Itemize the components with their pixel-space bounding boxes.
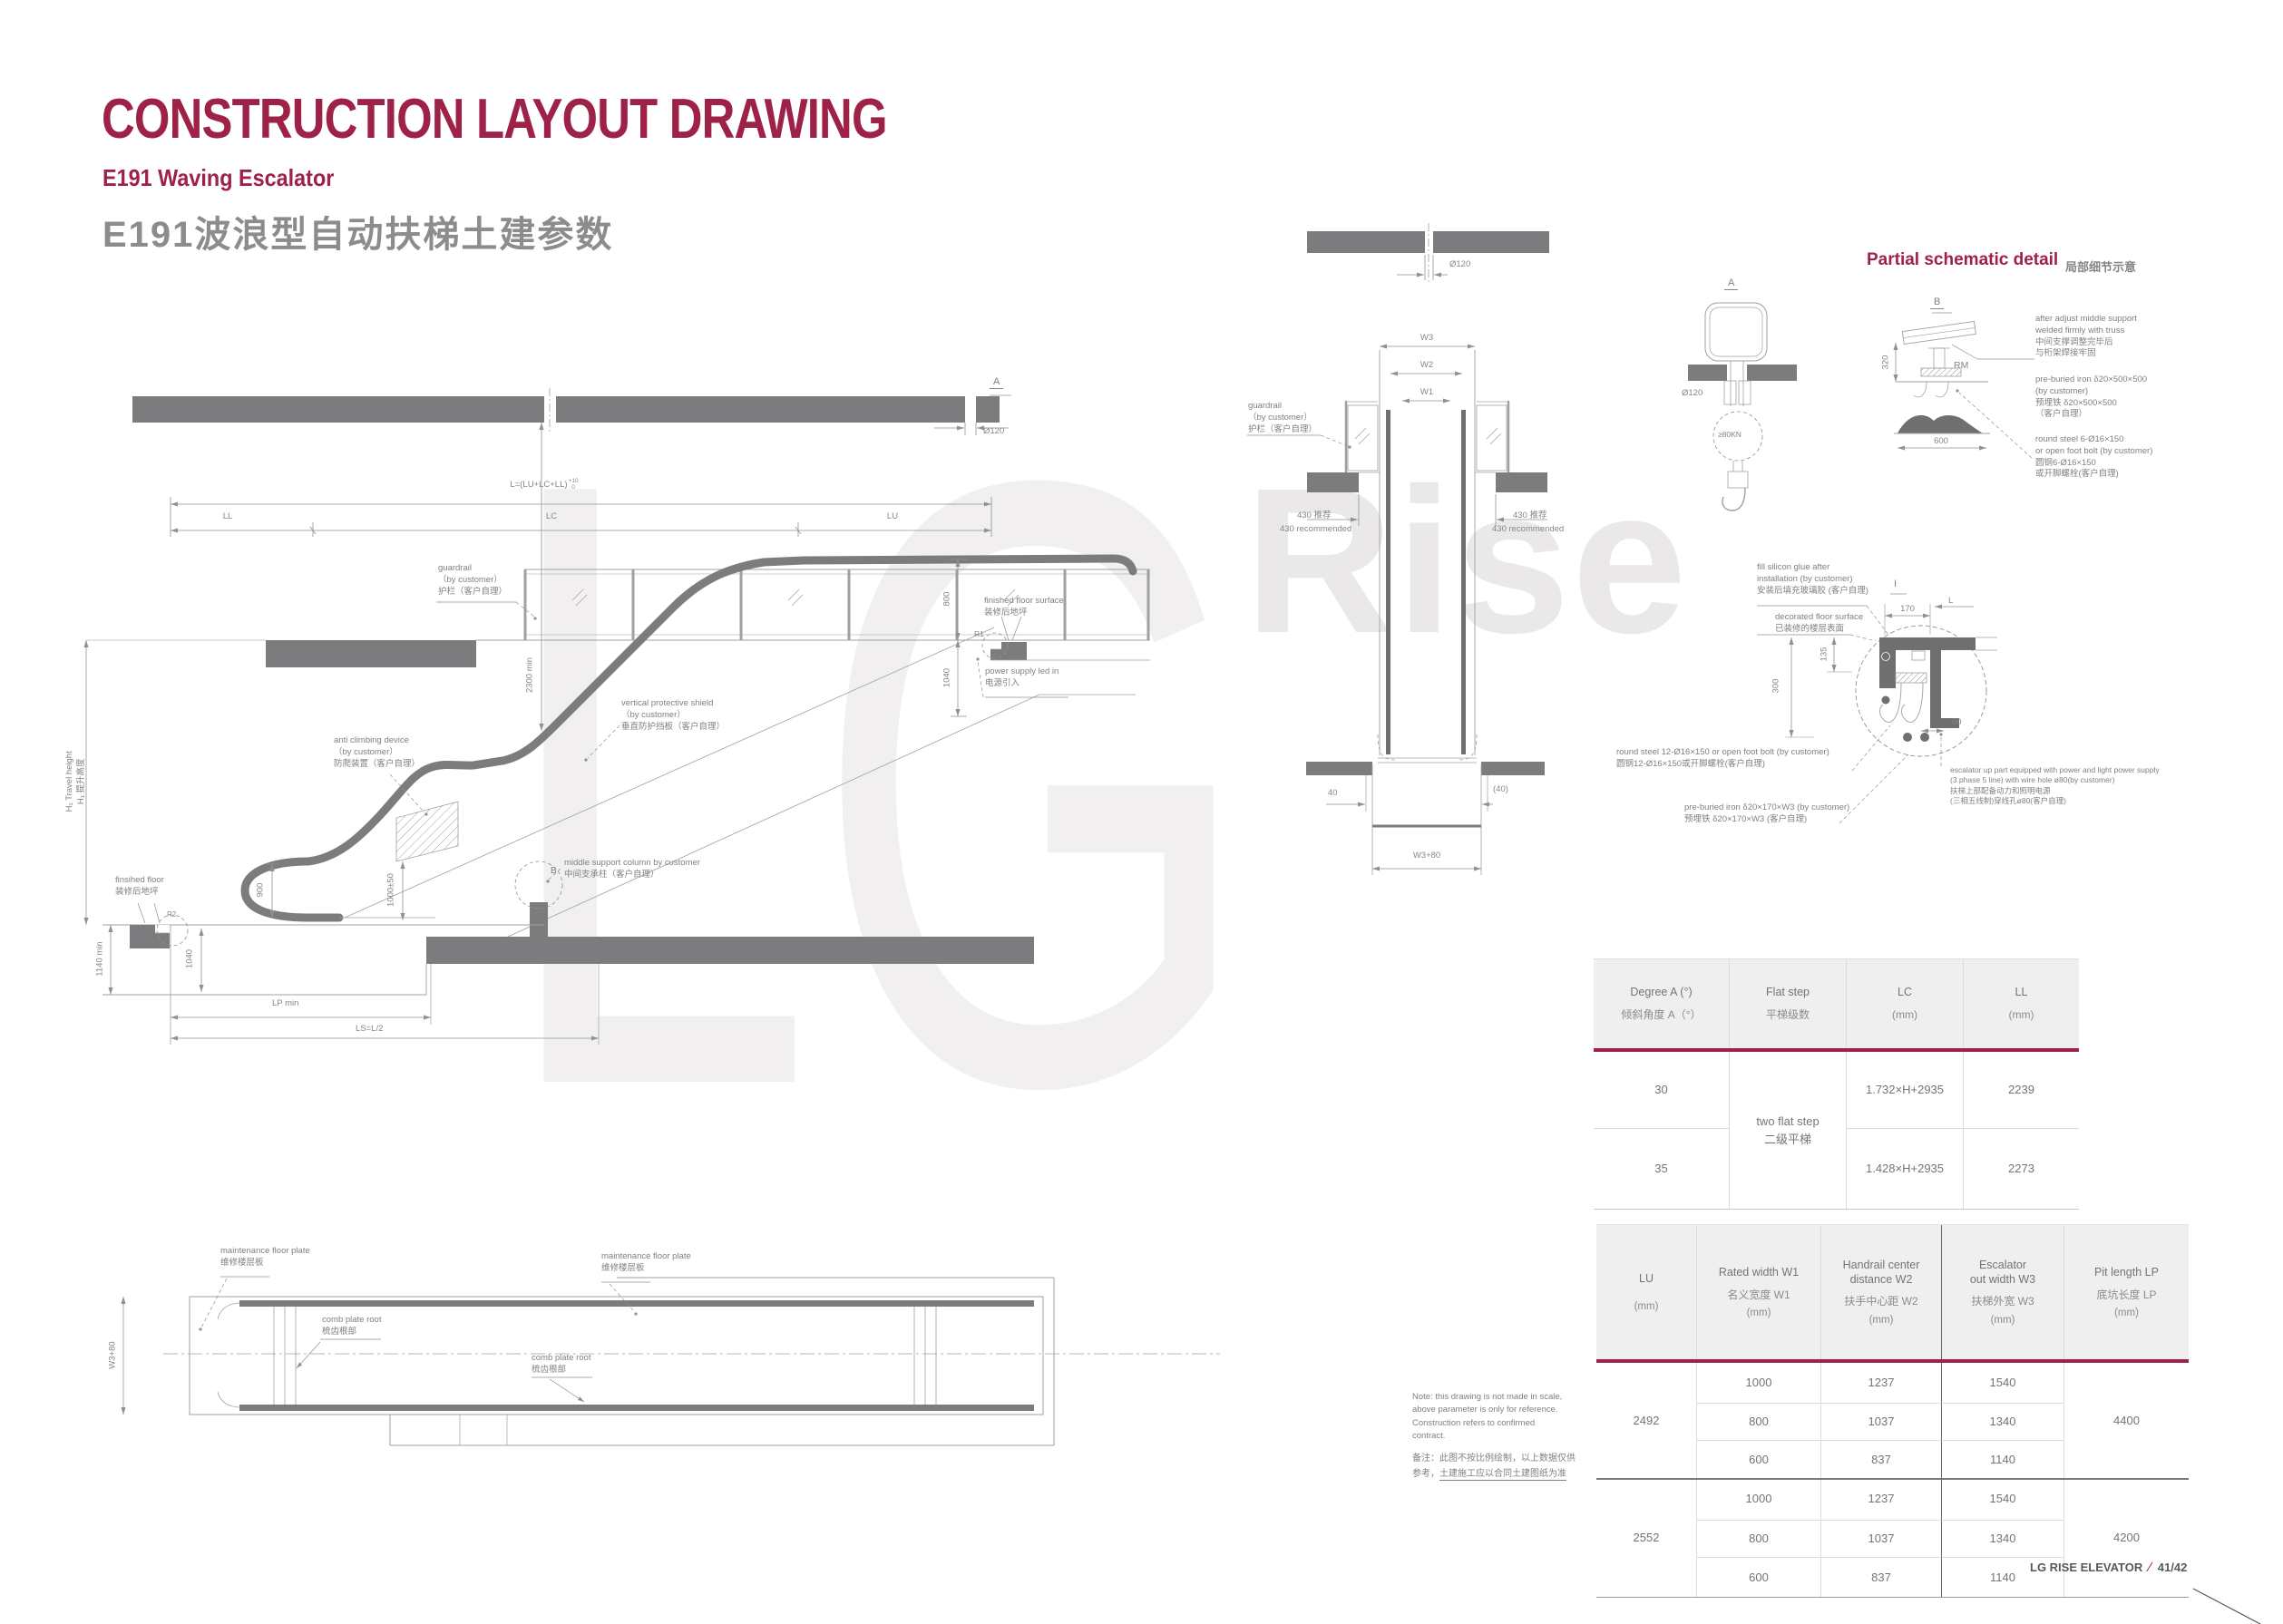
comb-plate-label-left: comb plate root 梳齿根部 <box>322 1315 381 1338</box>
width-parameter-table: LU (mm) Rated width W1 名义宽度 W1 (mm) Hand… <box>1596 1224 2189 1598</box>
label-line: 垂直防护挡板（客户自理） <box>621 722 725 734</box>
anti-climbing-label: anti climbing device （by customer） 防爬装置（… <box>334 735 420 770</box>
header-unit: (mm) <box>1747 1308 1771 1318</box>
page-number: 41/42 <box>2158 1561 2188 1574</box>
table-cell: 2239 <box>1964 1052 2079 1129</box>
table-cell: 1037 <box>1821 1404 1942 1441</box>
power-supply-label: power supply led in 电源引入 <box>985 666 1059 690</box>
pre-buried-iron-annotation: pre-buried iron δ20×500×500 (by customer… <box>2035 374 2147 421</box>
header-text: Escalator <box>1979 1259 2026 1273</box>
dim-lp-min: LP min <box>272 998 298 1008</box>
cell-text-cn: 二级平梯 <box>1764 1131 1811 1149</box>
note-line-cn: 备注：此图不按比例绘制，以上数据仅供 <box>1412 1451 1576 1466</box>
table-cell: 1340 <box>1942 1404 2064 1441</box>
detail-ref-r2: R2 <box>167 910 176 919</box>
label-line: H₁ Travel height <box>64 732 76 831</box>
plan-view-drawing <box>123 1277 1220 1445</box>
table-cell: 1000 <box>1697 1363 1821 1404</box>
label-line: comb plate root <box>322 1315 381 1327</box>
header-text-cn: 底坑长度 LP <box>2096 1289 2156 1301</box>
guardrail-label: guardrail （by customer） 护栏（客户自理） <box>438 563 507 598</box>
detail-a-drawing <box>1688 303 1797 511</box>
label-line: 防爬装置（客户自理） <box>334 759 420 771</box>
label-line: 护栏（客户自理） <box>438 587 507 598</box>
label-line: welded firmly with truss <box>2035 326 2137 337</box>
label-line: guardrail <box>438 563 507 575</box>
label-line: L=(LU+LC+LL) <box>510 480 567 490</box>
finished-floor-surface-label: finished floor surface 装修后地坪 <box>984 596 1064 619</box>
table-header-cell: LL (mm) <box>1964 959 2079 1048</box>
footer-divider: ∕ <box>2149 1560 2151 1575</box>
table-cell: 1237 <box>1821 1478 1942 1521</box>
detail-a-mark: A <box>1724 277 1738 290</box>
note-cn: 备注：此图不按比例绘制，以上数据仅供 参考，土建施工应以合同土建图纸为准 <box>1412 1451 1576 1482</box>
label-line: 圆钢6-Ø16×150 <box>2035 458 2152 470</box>
table-header-cell: Pit length LP 底坑长度 LP (mm) <box>2064 1225 2189 1359</box>
table-header-cell: Escalator out width W3 扶梯外宽 W3 (mm) <box>1942 1225 2064 1359</box>
detail-section-title-cn: 局部细节示意 <box>2065 258 2136 275</box>
label-line: 预埋铁 δ20×500×500 <box>2035 398 2147 410</box>
table-header-cell: LU (mm) <box>1596 1225 1697 1359</box>
detail-b-drawing <box>1894 313 2034 458</box>
detail-b-rm: RM <box>1954 360 1968 371</box>
label-line: 预埋铁 δ20×170×W3 (客户自理) <box>1684 814 1849 826</box>
label-line: (by customer) <box>2035 386 2147 398</box>
label-line: pre-buried iron δ20×500×500 <box>2035 374 2147 386</box>
label-line: 装修后地坪 <box>984 608 1064 619</box>
header-text: Pit length LP <box>2094 1266 2159 1280</box>
cross-section-drawing <box>1247 223 1549 875</box>
label-line: 已装修的楼层表面 <box>1775 624 1863 636</box>
label-line: （客户自理） <box>2035 409 2147 421</box>
dim-w3: W3 <box>1406 333 1448 343</box>
label-line: finished floor surface <box>984 596 1064 608</box>
table-header-cell: Degree A (°) 倾斜角度 A（°） <box>1594 959 1730 1048</box>
detail-ref-b: B <box>547 866 561 877</box>
note-line-cn-underlined: 土建施工应以合同土建图纸为准 <box>1439 1469 1566 1481</box>
protective-shield-label: vertical protective shield （by customer）… <box>621 698 725 733</box>
label-line: decorated floor surface <box>1775 612 1863 624</box>
label-line: pre-buried iron δ20×170×W3 (by customer) <box>1684 802 1849 814</box>
table-cell: 600 <box>1697 1558 1821 1597</box>
label-line: 护栏（客户自理） <box>1248 424 1317 436</box>
round-steel-annotation: round steel 6-Ø16×150 or open foot bolt … <box>2035 434 2152 481</box>
label-line: （by customer） <box>438 575 507 587</box>
header-text: LC <box>1898 986 1912 1000</box>
label-line: anti climbing device <box>334 735 420 747</box>
label-line: after adjust middle support <box>2035 314 2137 326</box>
round-steel-12-annotation: round steel 12-Ø16×150 or open foot bolt… <box>1616 747 1829 771</box>
table-cell: 4400 <box>2064 1363 2189 1478</box>
table-cell: 30 <box>1594 1052 1730 1129</box>
label-line: round steel 12-Ø16×150 or open foot bolt… <box>1616 747 1829 759</box>
detail-i-mark: I <box>1890 579 1900 590</box>
footer: LG RISE ELEVATOR ∕ 41/42 <box>2030 1560 2187 1575</box>
header-text: out width W3 <box>1970 1273 2035 1288</box>
guardrail-label-section: guardrail （by customer） 护栏（客户自理） <box>1248 401 1317 435</box>
note-line: Note: this drawing is not made in scale, <box>1412 1391 1562 1404</box>
travel-height-label: H₁ Travel height H₁ 提升高度 <box>64 732 88 831</box>
label-line: 圆钢12-Ø16×150或开脚螺栓(客户自理) <box>1616 759 1829 771</box>
comb-plate-label-right: comb plate root 梳齿根部 <box>532 1353 590 1376</box>
dim-1140-min: 1140 min <box>95 930 105 988</box>
table-cell: 2552 <box>1596 1478 1697 1597</box>
header-text-cn: 平梯级数 <box>1766 1008 1810 1021</box>
detail-section-title: Partial schematic detail <box>1867 250 2058 270</box>
detail-a-hole-dia: Ø120 <box>1682 388 1702 398</box>
pre-buried-iron-i-annotation: pre-buried iron δ20×170×W3 (by customer)… <box>1684 802 1849 826</box>
table-header-cell: LC (mm) <box>1847 959 1964 1048</box>
label-line: finsihed floor <box>115 875 164 887</box>
label-line: 维修楼层板 <box>601 1263 691 1275</box>
table-group-divider <box>1596 1478 2189 1480</box>
table-cell: 600 <box>1697 1441 1821 1478</box>
header-text-cn: (mm) <box>2009 1008 2034 1021</box>
table-cell: 1000 <box>1697 1478 1821 1521</box>
dim-ll: LL <box>214 511 241 521</box>
label-line: （by customer） <box>1248 413 1317 424</box>
header-text-cn: 扶手中心距 W2 <box>1844 1295 1917 1308</box>
header-text: distance W2 <box>1850 1273 1913 1288</box>
section-mark-a: A <box>990 376 1003 389</box>
label-line: 安装后填充玻璃胶 (客户自理) <box>1757 586 1868 598</box>
label-line: 扶梯上部配备动力和照明电源 <box>1950 786 2160 796</box>
header-unit: (mm) <box>1869 1315 1894 1326</box>
note-line: contract. <box>1412 1430 1562 1443</box>
label-line: （by customer） <box>621 710 725 722</box>
label-line: maintenance floor plate <box>601 1251 691 1263</box>
table-cell: 2492 <box>1596 1363 1697 1478</box>
detail-a-load: ≥80KN <box>1718 430 1742 439</box>
dim-40-paren: (40) <box>1493 784 1508 794</box>
header-text-cn: 扶梯外宽 W3 <box>1971 1295 2034 1308</box>
header-unit: (mm) <box>1634 1301 1659 1312</box>
header-text: LU <box>1639 1272 1654 1287</box>
dim-w2: W2 <box>1406 360 1448 370</box>
table-cell: two flat step 二级平梯 <box>1730 1052 1847 1209</box>
table-cell: 1540 <box>1942 1363 2064 1404</box>
dim-2300-min: 2300 min <box>525 644 535 707</box>
label-line: 装修后地坪 <box>115 887 164 899</box>
table-cell: 35 <box>1594 1129 1730 1209</box>
header-text: Flat step <box>1766 986 1810 1000</box>
note-line: Construction refers to confirmed <box>1412 1417 1562 1430</box>
dim-1000: 1000±50 <box>386 865 396 916</box>
header-text: Rated width W1 <box>1719 1266 1799 1280</box>
page-subtitle-cn: E191波浪型自动扶梯土建参数 <box>102 205 613 258</box>
detail-b-mark: B <box>1930 297 1944 309</box>
header-text-cn: (mm) <box>1892 1008 1917 1021</box>
detail-b-dim-600: 600 <box>1923 436 1959 446</box>
table-header-cell: Rated width W1 名义宽度 W1 (mm) <box>1697 1225 1821 1359</box>
table-cell: 1540 <box>1942 1478 2064 1521</box>
table-cell: 837 <box>1821 1558 1942 1597</box>
table-cell: 837 <box>1821 1441 1942 1478</box>
maintenance-plate-label-right: maintenance floor plate 维修楼层板 <box>601 1251 691 1275</box>
header-text-cn: 倾斜角度 A（°） <box>1621 1008 1701 1021</box>
tolerance-lower: 0 <box>569 484 579 491</box>
dim-430-cn-left: 430 推荐 <box>1297 508 1332 520</box>
header-text-cn: 名义宽度 W1 <box>1727 1289 1790 1301</box>
detail-i-dim-170: 170 <box>1888 604 1927 614</box>
table-cell: 1037 <box>1821 1521 1942 1558</box>
header-text: LL <box>2015 986 2028 1000</box>
note-line: above parameter is only for reference. <box>1412 1404 1562 1416</box>
table-cell: 4200 <box>2064 1478 2189 1597</box>
dim-40: 40 <box>1328 788 1338 798</box>
dim-w3-plus-80-plan: W3+80 <box>108 1333 118 1378</box>
dim-800: 800 <box>942 581 952 618</box>
label-line: （by customer） <box>334 747 420 759</box>
table-header-cell: Handrail center distance W2 扶手中心距 W2 (mm… <box>1821 1225 1942 1359</box>
table-cell: 1.732×H+2935 <box>1847 1052 1964 1129</box>
label-line: 与桁架焊接牢固 <box>2035 348 2137 360</box>
table-cell: 1.428×H+2935 <box>1847 1129 1964 1209</box>
dim-lc: LC <box>535 511 568 521</box>
dim-430-en-left: 430 recommended <box>1280 524 1351 534</box>
note-en: Note: this drawing is not made in scale,… <box>1412 1391 1562 1443</box>
dim-w1: W1 <box>1406 387 1448 397</box>
table-header-cell: Flat step 平梯级数 <box>1730 959 1847 1048</box>
label-line: 电源引入 <box>985 678 1059 690</box>
label-line: 中间支撑调整完毕后 <box>2035 337 2137 349</box>
label-line: H₁ 提升高度 <box>76 732 88 831</box>
label-line: installation (by customer) <box>1757 574 1868 586</box>
decorated-floor-annotation: decorated floor surface 已装修的楼层表面 <box>1775 612 1863 636</box>
label-line: maintenance floor plate <box>220 1246 310 1258</box>
page-subtitle-en: E191 Waving Escalator <box>102 164 334 192</box>
detail-i-dim-135: 135 <box>1820 641 1829 668</box>
corner-slash <box>2193 1589 2260 1624</box>
detail-ref-r1: R1 <box>974 629 984 638</box>
dim-section-hole: Ø120 <box>1449 259 1470 269</box>
label-line: power supply led in <box>985 666 1059 678</box>
label-line: guardrail <box>1248 401 1317 413</box>
label-line: 梳齿根部 <box>322 1327 381 1338</box>
dim-430-en-right: 430 recommended <box>1492 524 1564 534</box>
dim-1040-right: 1040 <box>942 660 952 696</box>
dim-w3-plus-80-section: W3+80 <box>1404 851 1449 861</box>
power-supply-detail-annotation: escalator up part equipped with power an… <box>1950 765 2160 807</box>
dim-lu: LU <box>876 511 909 521</box>
label-line: middle support column by customer <box>564 858 700 870</box>
page-title: CONSTRUCTION LAYOUT DRAWING <box>102 87 887 151</box>
label-line: or open foot bolt (by customer) <box>2035 446 2152 458</box>
header-unit: (mm) <box>1991 1315 2015 1326</box>
label-line: 中间支承柱（客户自理） <box>564 870 700 881</box>
dim-900: 900 <box>256 872 266 909</box>
detail-i-dim-300: 300 <box>1771 673 1781 700</box>
dim-ls: LS=L/2 <box>356 1024 383 1034</box>
label-line: 或开脚螺栓(客户自理) <box>2035 469 2152 481</box>
detail-i-dim-50: 50 <box>1952 717 1962 727</box>
footer-brand: LG RISE ELEVATOR <box>2030 1561 2142 1574</box>
cell-text: two flat step <box>1756 1113 1819 1131</box>
maintenance-plate-label-left: maintenance floor plate 维修楼层板 <box>220 1246 310 1269</box>
header-text: Degree A (°) <box>1630 986 1692 1000</box>
dim-430-cn-right: 430 推荐 <box>1513 508 1547 520</box>
table-cell: 800 <box>1697 1404 1821 1441</box>
label-line: 梳齿根部 <box>532 1365 590 1376</box>
table-cell: 1340 <box>1942 1521 2064 1558</box>
drawing-sheet: LG Rise <box>0 0 2283 1624</box>
detail-b-dim-320: 320 <box>1881 347 1891 378</box>
label-line: comb plate root <box>532 1353 590 1365</box>
silicon-glue-annotation: fill silicon glue after installation (by… <box>1757 562 1868 597</box>
dim-total-length: L=(LU+LC+LL)+100 <box>426 478 662 491</box>
dim-hoist-hole: Ø120 <box>983 426 1004 436</box>
label-line: vertical protective shield <box>621 698 725 710</box>
table-cell: 1140 <box>1942 1441 2064 1478</box>
middle-support-label: middle support column by customer 中间支承柱（… <box>564 858 700 881</box>
label-line: (三相五线制)穿线孔ø80(客户自理) <box>1950 796 2160 806</box>
header-unit: (mm) <box>2114 1308 2139 1318</box>
label-line: fill silicon glue after <box>1757 562 1868 574</box>
label-line: 维修楼层板 <box>220 1258 310 1269</box>
header-text: Handrail center <box>1843 1259 1920 1273</box>
table-cell: 1237 <box>1821 1363 1942 1404</box>
table-cell: 800 <box>1697 1521 1821 1558</box>
weld-annotation: after adjust middle support welded firml… <box>2035 314 2137 360</box>
detail-i-l-mark: L <box>1948 596 1953 606</box>
label-line: round steel 6-Ø16×150 <box>2035 434 2152 446</box>
table-cell: 2273 <box>1964 1129 2079 1209</box>
note-line-cn: 参考， <box>1412 1469 1439 1479</box>
label-line: (3 phase 5 line) with wire hole ø80(by c… <box>1950 775 2160 785</box>
angle-parameter-table: Degree A (°) 倾斜角度 A（°） Flat step 平梯级数 LC… <box>1594 958 2079 1210</box>
dim-1040-left: 1040 <box>185 941 195 977</box>
label-line: escalator up part equipped with power an… <box>1950 765 2160 775</box>
finished-floor-lower-label: finsihed floor 装修后地坪 <box>115 875 164 899</box>
tolerance-upper: +10 <box>569 478 579 484</box>
